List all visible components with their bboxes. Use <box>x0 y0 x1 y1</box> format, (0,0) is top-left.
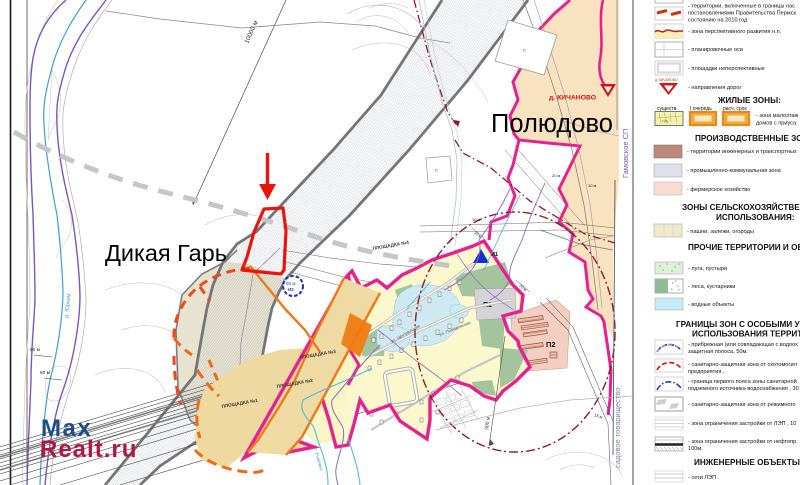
svg-text:Realt.ru: Realt.ru <box>40 436 137 463</box>
svg-text:садовое товарищество: садовое товарищество <box>613 388 622 468</box>
svg-text:- пашни, залежи, огороды: - пашни, залежи, огороды <box>687 229 754 235</box>
svg-text:- направления дорог: - направления дорог <box>688 85 742 91</box>
svg-text:- территории, включенные в гра: - территории, включенные в границы нас <box>688 4 795 10</box>
svg-text:сущ: сущ <box>662 119 668 123</box>
svg-text:- леса, кустарники: - леса, кустарники <box>688 284 735 290</box>
svg-text:- фермерское хозяйство: - фермерское хозяйство <box>687 186 750 193</box>
svg-text:10 м: 10 м <box>588 183 597 188</box>
svg-text:20 м: 20 м <box>552 173 561 178</box>
svg-text:д. КИЧАНОВО: д. КИЧАНОВО <box>655 78 678 82</box>
svg-text:- сети ЛЭП .: - сети ЛЭП . <box>688 475 720 481</box>
svg-text:существ.: существ. <box>657 106 678 112</box>
svg-text:- санитарно-защитная зона от р: - санитарно-защитная зона от режимного <box>688 402 796 408</box>
svg-text:И2: И2 <box>288 287 294 292</box>
svg-text:- прибрежная (или совпадающая: - прибрежная (или совпадающая с водоох <box>688 342 798 348</box>
svg-text:- луга, пустыри: - луга, пустыри <box>688 266 727 272</box>
svg-text:ИСПОЛЬЗОВАНИЯ:: ИСПОЛЬЗОВАНИЯ: <box>716 213 795 222</box>
svg-text:- площадки неперспективные: - площадки неперспективные <box>688 66 765 72</box>
svg-text:постановлениями Правительства: постановлениями Правительства Пермск <box>688 11 796 17</box>
svg-text:подземного источника водоснабж: подземного источника водоснабжения , 30 <box>688 386 799 392</box>
svg-text:ПРОИЗВОДСТВЕННЫЕ ЗОНЫ: ПРОИЗВОДСТВЕННЫЕ ЗОНЫ <box>695 134 800 143</box>
svg-text:50 м: 50 м <box>40 370 50 376</box>
svg-text:- граница первого пояса зоны с: - граница первого пояса зоны санитарной <box>688 378 797 385</box>
svg-text:ГРАНИЦЫ ЗОН С ОСОБЫМИ УСЛ: ГРАНИЦЫ ЗОН С ОСОБЫМИ УСЛ <box>676 320 800 329</box>
svg-text:- территории инженерных и тран: - территории инженерных и транспортных <box>687 149 797 155</box>
svg-text:- санитарно-защитная зона от с: - санитарно-защитная зона от скотомогил <box>688 362 797 368</box>
svg-text:п: п <box>435 168 438 174</box>
svg-text:50 м: 50 м <box>30 347 40 353</box>
svg-text:ПРОЧИЕ ТЕРРИТОРИИ И ОБЪ: ПРОЧИЕ ТЕРРИТОРИИ И ОБЪ <box>688 243 800 252</box>
svg-text:ЖИЛЫЕ ЗОНЫ:: ЖИЛЫЕ ЗОНЫ: <box>717 96 781 105</box>
svg-text:защитная полоса, 50м.: защитная полоса, 50м. <box>688 349 748 355</box>
svg-text:- зона ограничения застройки о: - зона ограничения застройки от нефтепр <box>688 438 796 445</box>
svg-text:П2: П2 <box>546 340 556 349</box>
svg-text:- промышленно-коммунальная зон: - промышленно-коммунальная зона <box>687 168 782 174</box>
svg-text:предприятия .: предприятия . <box>688 369 725 375</box>
svg-text:домов с приуса: домов с приуса <box>756 121 797 127</box>
svg-text:Полюдово: Полюдово <box>491 110 613 138</box>
svg-text:10 м: 10 м <box>472 217 481 222</box>
svg-text:п: п <box>523 48 526 54</box>
svg-text:ЗОНЫ СЕЛЬСКОХОЗЯЙСТВЕНН: ЗОНЫ СЕЛЬСКОХОЗЯЙСТВЕНН <box>682 201 800 212</box>
svg-text:100м.: 100м. <box>688 446 703 452</box>
svg-text:- зона перспективного развития: - зона перспективного развития н.п. <box>688 29 782 35</box>
svg-text:- зона малоэтаж: - зона малоэтаж <box>756 113 799 119</box>
svg-text:Гамовское СП: Гамовское СП <box>621 129 630 178</box>
svg-text:состоянию на 2010 год: состоянию на 2010 год <box>688 18 748 24</box>
svg-text:ИСПОЛЬЗОВАНИЯ ТЕРРИТО: ИСПОЛЬЗОВАНИЯ ТЕРРИТО <box>692 330 800 339</box>
svg-text:- водные объекты: - водные объекты <box>688 302 734 308</box>
svg-text:д. КИЧАНОВО: д. КИЧАНОВО <box>549 95 596 102</box>
svg-text:- планировочные оси: - планировочные оси <box>688 47 743 53</box>
svg-text:- зона ограничения застройки о: - зона ограничения застройки от ЛЭП , 10 <box>688 420 796 427</box>
svg-text:ИНЖЕНЕРНЫЕ ОБЪЕКТЫ:: ИНЖЕНЕРНЫЕ ОБЪЕКТЫ: <box>694 458 800 467</box>
svg-text:50 м: 50 м <box>286 281 296 286</box>
svg-text:Дикая Гарь: Дикая Гарь <box>105 240 227 266</box>
